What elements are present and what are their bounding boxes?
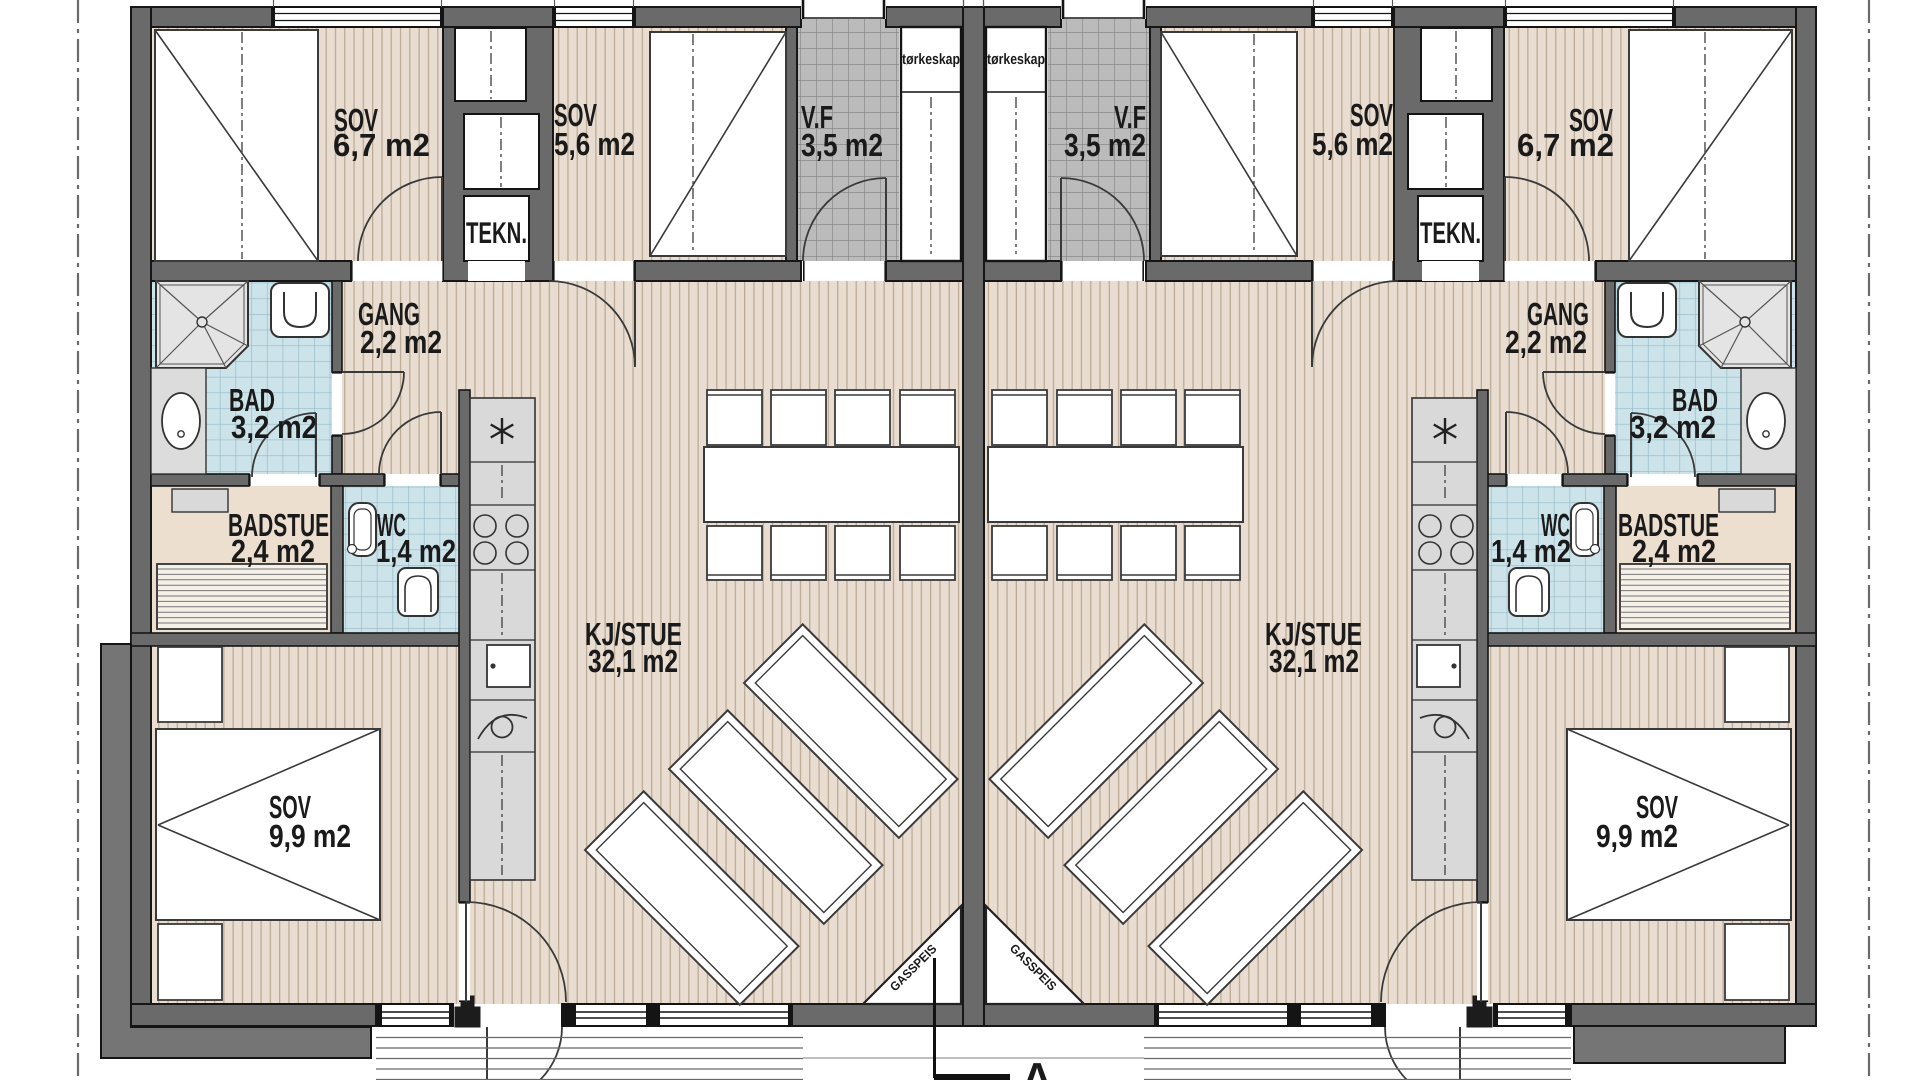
svg-text:3,2 m2: 3,2 m2 xyxy=(1630,409,1716,445)
svg-text:3,5 m2: 3,5 m2 xyxy=(801,127,883,163)
svg-text:A: A xyxy=(1022,1054,1052,1080)
svg-text:1,4 m2: 1,4 m2 xyxy=(376,533,456,569)
svg-text:TEKN.: TEKN. xyxy=(1420,217,1481,250)
svg-text:3,5 m2: 3,5 m2 xyxy=(1064,127,1146,163)
svg-text:3,2 m2: 3,2 m2 xyxy=(231,409,317,445)
svg-text:tørkeskap: tørkeskap xyxy=(902,51,960,68)
svg-text:TEKN.: TEKN. xyxy=(466,217,527,250)
svg-text:9,9 m2: 9,9 m2 xyxy=(269,818,351,854)
svg-text:6,7 m2: 6,7 m2 xyxy=(333,127,430,163)
svg-text:2,4 m2: 2,4 m2 xyxy=(231,533,315,569)
svg-text:6,7 m2: 6,7 m2 xyxy=(1517,127,1614,163)
svg-text:1,4 m2: 1,4 m2 xyxy=(1491,533,1571,569)
svg-text:2,4 m2: 2,4 m2 xyxy=(1632,533,1716,569)
svg-text:2,2 m2: 2,2 m2 xyxy=(360,324,442,360)
svg-text:2,2 m2: 2,2 m2 xyxy=(1505,324,1587,360)
svg-text:9,9 m2: 9,9 m2 xyxy=(1596,818,1678,854)
svg-text:tørkeskap: tørkeskap xyxy=(987,51,1045,68)
svg-text:32,1 m2: 32,1 m2 xyxy=(1269,643,1359,679)
svg-text:32,1 m2: 32,1 m2 xyxy=(588,643,678,679)
svg-text:5,6 m2: 5,6 m2 xyxy=(1312,126,1393,162)
svg-text:5,6 m2: 5,6 m2 xyxy=(554,126,635,162)
